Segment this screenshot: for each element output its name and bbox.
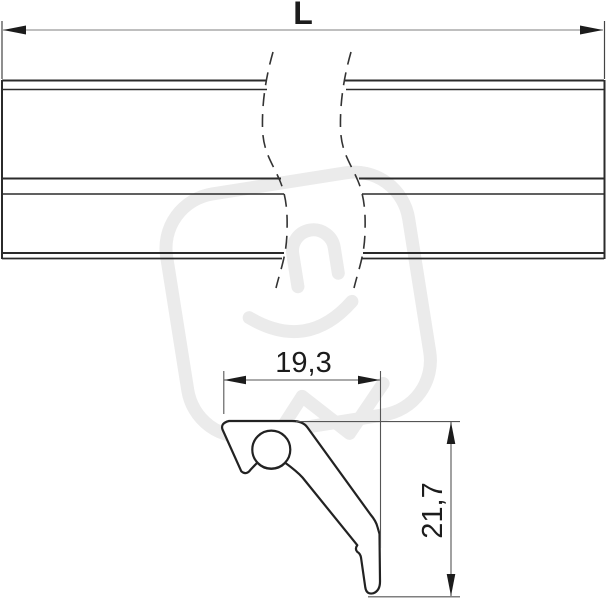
height-dimension-label: 21,7 [417,482,449,538]
drawing-svg: L 19,3 21,7 [0,0,607,600]
profile-screw-channel [252,431,290,469]
technical-drawing-canvas: L 19,3 21,7 [0,0,607,600]
width-dimension-label: 19,3 [275,347,331,379]
length-dimension-label: L [293,0,313,31]
